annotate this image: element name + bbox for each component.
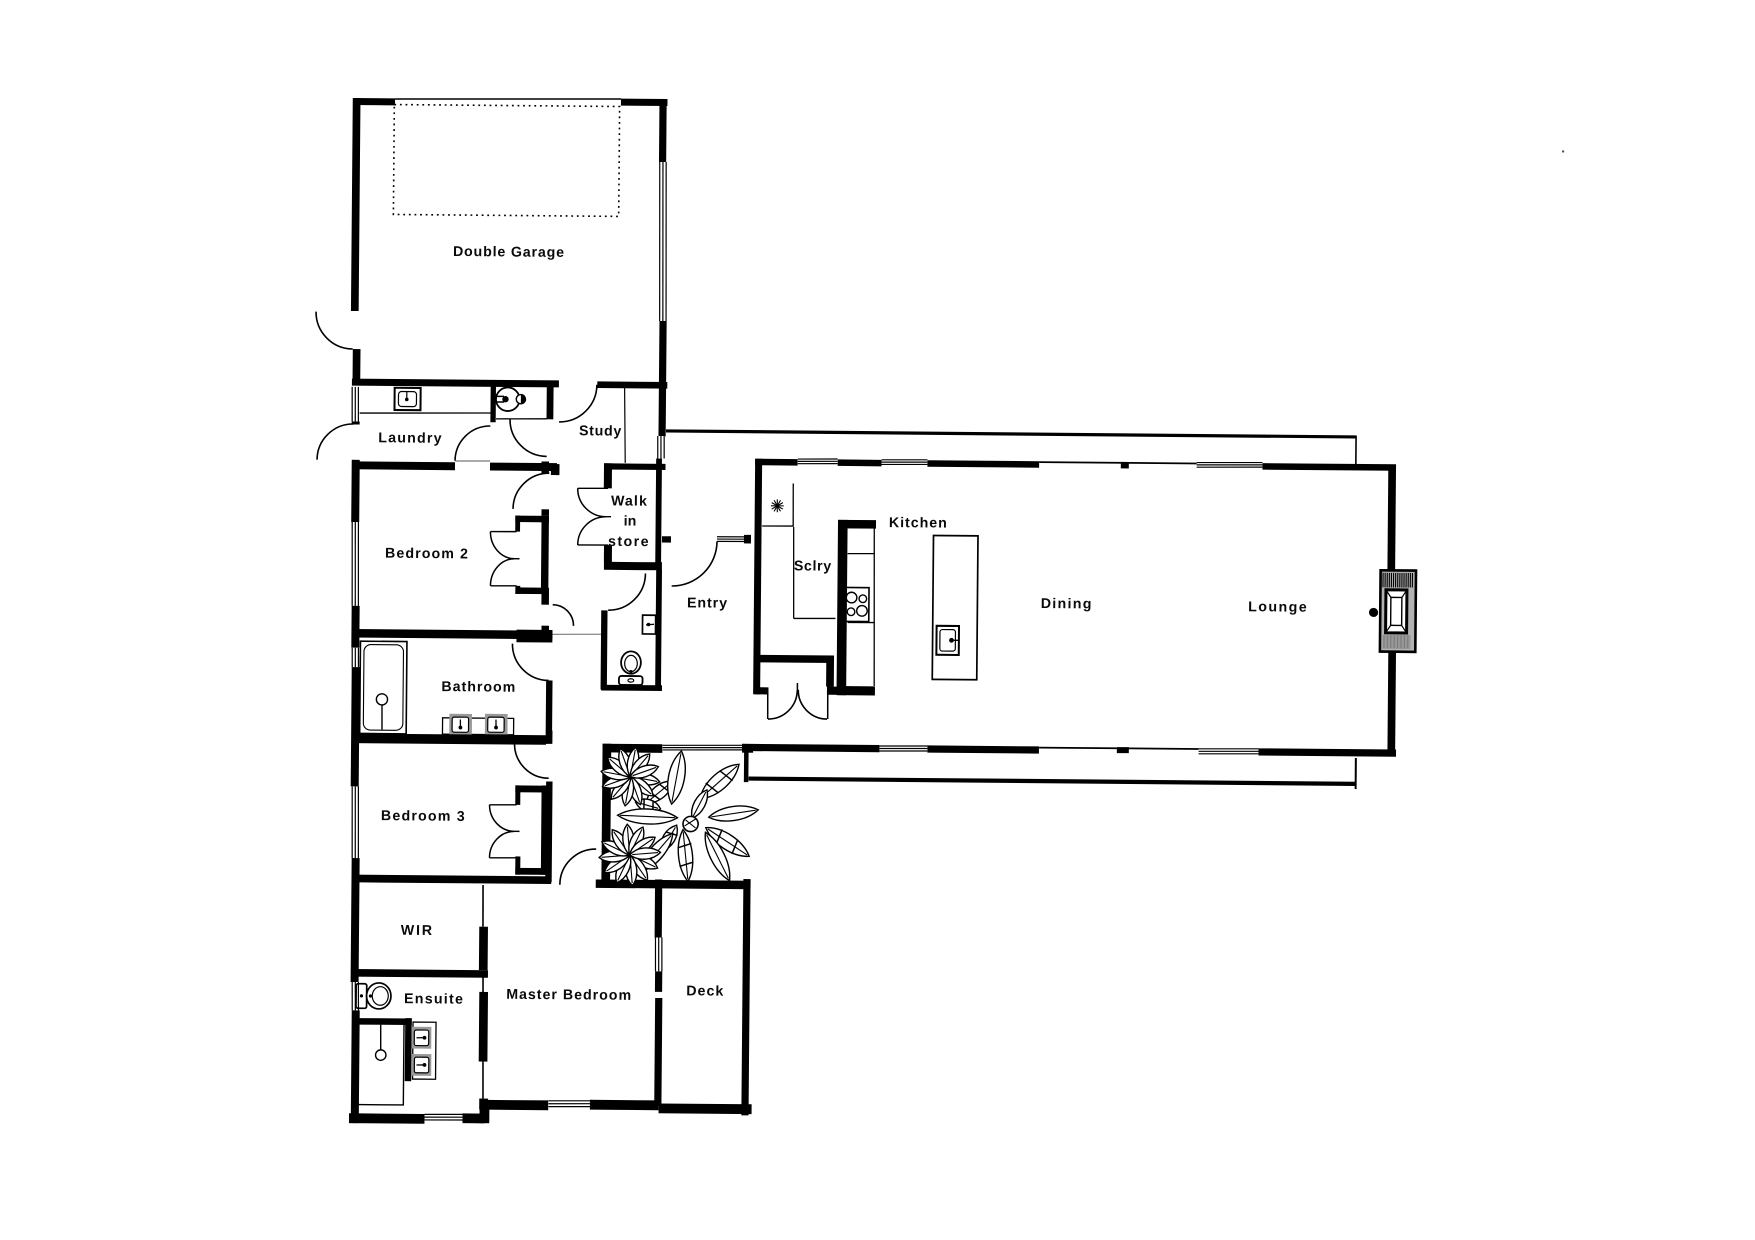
svg-text:Dining: Dining	[1041, 596, 1093, 612]
svg-text:Kitchen: Kitchen	[889, 515, 948, 532]
svg-text:Ensuite: Ensuite	[404, 991, 464, 1008]
svg-text:WIR: WIR	[401, 923, 434, 939]
svg-text:Entry: Entry	[687, 595, 728, 611]
svg-text:Bedroom 3: Bedroom 3	[381, 808, 466, 825]
svg-text:Double Garage: Double Garage	[453, 244, 565, 261]
svg-text:Deck: Deck	[686, 983, 724, 999]
svg-text:Sclry: Sclry	[794, 558, 832, 574]
svg-text:Study: Study	[579, 423, 622, 439]
svg-text:store: store	[608, 534, 650, 550]
svg-text:Master Bedroom: Master Bedroom	[506, 987, 632, 1004]
svg-text:Lounge: Lounge	[1248, 599, 1308, 616]
svg-text:Bathroom: Bathroom	[441, 679, 516, 696]
svg-text:in: in	[624, 513, 637, 529]
svg-text:Laundry: Laundry	[378, 430, 443, 447]
svg-text:Walk: Walk	[611, 493, 648, 509]
svg-text:Bedroom 2: Bedroom 2	[385, 546, 469, 563]
